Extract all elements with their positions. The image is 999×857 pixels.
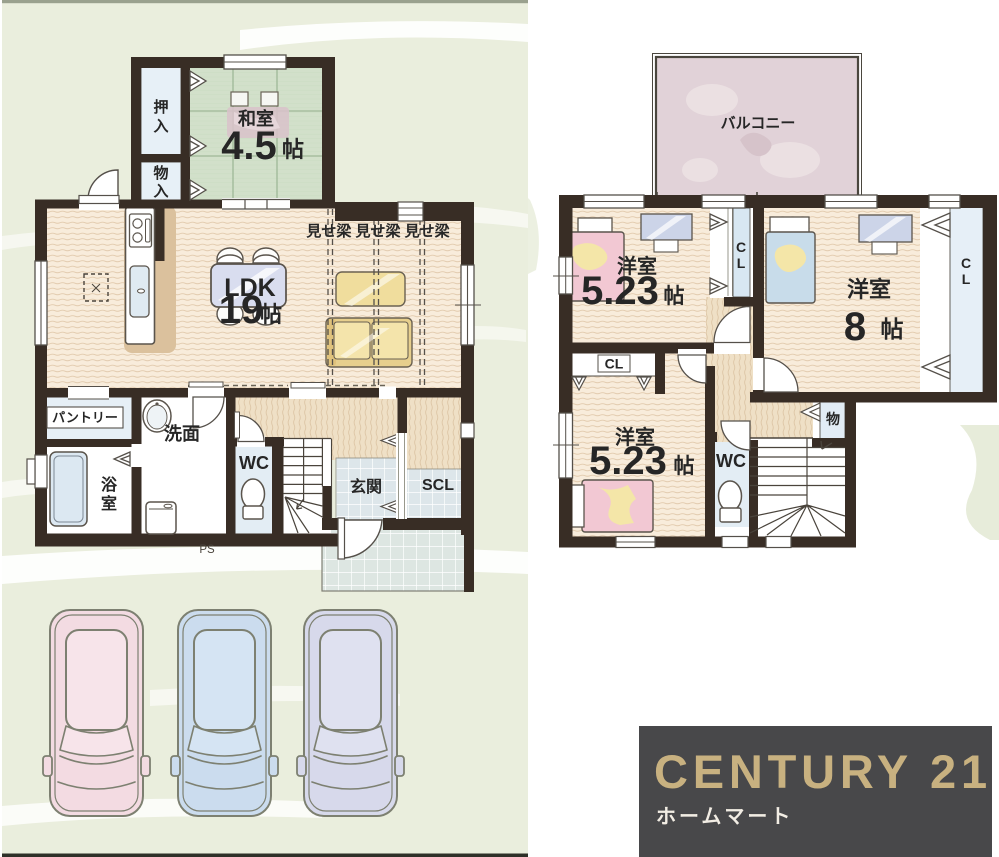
svg-text:浴: 浴 bbox=[101, 475, 118, 494]
svg-text:帖: 帖 bbox=[282, 137, 304, 162]
svg-text:洋室: 洋室 bbox=[847, 277, 891, 302]
svg-text:パントリー: パントリー bbox=[52, 410, 118, 425]
svg-text:19: 19 bbox=[219, 288, 264, 332]
svg-text:PS: PS bbox=[199, 544, 215, 556]
svg-text:室: 室 bbox=[101, 494, 117, 513]
svg-text:WC: WC bbox=[239, 453, 269, 473]
svg-text:バルコニー: バルコニー bbox=[721, 115, 796, 132]
svg-text:帖: 帖 bbox=[260, 302, 282, 327]
svg-text:物: 物 bbox=[826, 411, 840, 427]
svg-text:帖: 帖 bbox=[881, 316, 904, 342]
svg-text:見せ梁 見せ梁 見せ梁: 見せ梁 見せ梁 見せ梁 bbox=[305, 222, 450, 240]
svg-text:8: 8 bbox=[844, 305, 866, 349]
svg-text:L: L bbox=[737, 255, 746, 271]
svg-text:押: 押 bbox=[153, 98, 168, 116]
svg-text:C: C bbox=[736, 239, 746, 255]
svg-text:L: L bbox=[962, 271, 971, 287]
svg-text:ホームマート: ホームマート bbox=[656, 806, 793, 828]
svg-text:CENTURY 21: CENTURY 21 bbox=[654, 745, 992, 798]
svg-text:入: 入 bbox=[153, 118, 168, 135]
svg-text:WC: WC bbox=[716, 451, 746, 471]
svg-text:CL: CL bbox=[605, 356, 624, 372]
svg-text:帖: 帖 bbox=[664, 285, 685, 308]
svg-text:4.5: 4.5 bbox=[221, 124, 277, 168]
svg-text:C: C bbox=[961, 255, 971, 271]
svg-text:帖: 帖 bbox=[674, 455, 695, 478]
svg-text:洗面: 洗面 bbox=[164, 423, 200, 444]
svg-text:5.23: 5.23 bbox=[589, 439, 667, 483]
svg-text:玄関: 玄関 bbox=[350, 477, 382, 496]
svg-text:物: 物 bbox=[153, 164, 168, 182]
svg-text:5.23: 5.23 bbox=[581, 269, 659, 313]
svg-text:入: 入 bbox=[153, 183, 168, 200]
svg-text:SCL: SCL bbox=[422, 477, 454, 494]
